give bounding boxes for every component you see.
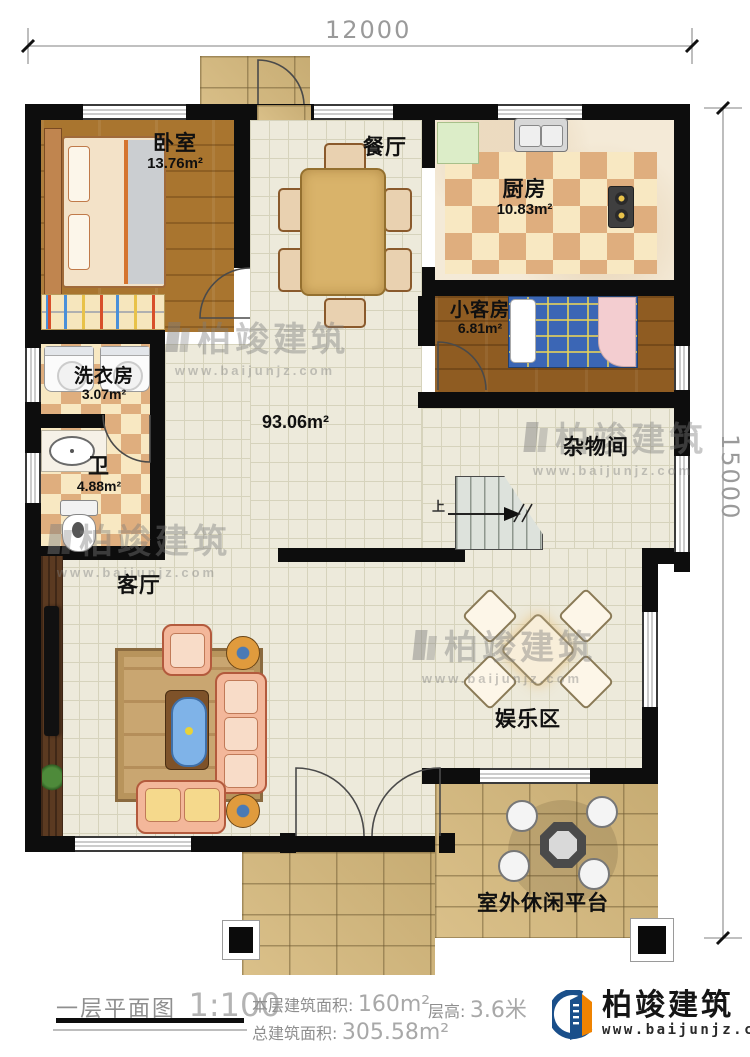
wardrobe xyxy=(41,294,165,330)
floor-area-value: 160m² xyxy=(358,992,430,1017)
patio-chair-2 xyxy=(586,796,618,828)
floor-plan-canvas: 上 xyxy=(0,0,750,1057)
kitchen-sink xyxy=(514,118,568,152)
platform-floor-lower xyxy=(242,852,435,975)
label-dining: 餐厅 xyxy=(343,136,427,160)
label-guest-room: 小客房6.81m² xyxy=(430,300,530,337)
side-table-top xyxy=(226,636,260,670)
window-left-bathroom xyxy=(25,453,41,503)
label-platform: 室外休闲平台 xyxy=(458,892,628,916)
sofa-two-seat xyxy=(136,780,226,834)
brand-logo: 柏竣建筑 www.baijunjz.com xyxy=(552,990,750,1042)
stairs-up-label: 上 xyxy=(432,496,445,515)
sofa-three-seat xyxy=(215,672,267,794)
label-hall-area: 93.06m² xyxy=(262,412,329,433)
wall-bedroom-right xyxy=(234,104,250,268)
window-top-dining xyxy=(314,104,393,120)
label-laundry: 洗衣房3.07m² xyxy=(48,366,160,403)
patio-chair-1 xyxy=(506,800,538,832)
bed-pillow-1 xyxy=(68,146,90,202)
door-post-left xyxy=(280,833,296,853)
dimension-top-value: 12000 xyxy=(325,16,411,44)
wall-bath-divider xyxy=(25,414,105,428)
window-right-guest xyxy=(674,346,690,390)
toilet xyxy=(58,500,98,552)
label-living: 客厅 xyxy=(100,574,178,598)
wall-bedroom-bottom xyxy=(25,330,165,344)
wall-hall-living-divider xyxy=(278,548,465,562)
window-right-storage xyxy=(674,456,690,552)
total-area-label: 总建筑面积: xyxy=(252,1024,337,1043)
label-storage: 杂物间 xyxy=(548,436,644,460)
dining-chair-right-2 xyxy=(384,248,412,292)
window-left-laundry xyxy=(25,348,41,402)
floor-area-row: 本层建筑面积: 160m² xyxy=(252,992,430,1017)
wall-guest-bottom xyxy=(418,392,674,408)
door-post-right xyxy=(439,833,455,853)
column-left xyxy=(222,920,260,960)
window-living-bottom xyxy=(75,836,191,852)
side-table-bottom xyxy=(226,794,260,828)
wall-laundry-right xyxy=(150,330,165,548)
label-entertainment: 娱乐区 xyxy=(478,708,578,732)
storey-height-label: 层高: xyxy=(428,1002,465,1021)
hall-left-floor xyxy=(165,344,250,548)
coffee-table xyxy=(165,690,209,770)
total-area-value: 305.58m² xyxy=(342,1020,449,1045)
patio-chair-3 xyxy=(498,850,530,882)
total-area-row: 总建筑面积: 305.58m² xyxy=(252,1020,449,1045)
dining-chair-right-1 xyxy=(384,188,412,232)
window-entertainment-bottom xyxy=(480,768,590,784)
bed-pillow-2 xyxy=(68,214,90,270)
dining-table xyxy=(300,168,386,296)
label-bedroom: 卧室13.76m² xyxy=(115,132,235,172)
bed-headboard xyxy=(44,128,62,296)
title-underline-thin xyxy=(53,1029,247,1031)
guest-bed-blanket xyxy=(598,297,636,367)
brand-url: www.baijunjz.com xyxy=(602,1022,750,1038)
dimension-right-value: 15000 xyxy=(716,434,744,514)
title-underline-thick xyxy=(56,1018,244,1023)
brand-name: 柏竣建筑 xyxy=(602,990,750,1022)
kitchen-cutting-counter xyxy=(437,122,479,164)
wall-entertainment-bottom-right xyxy=(590,768,658,784)
armchair xyxy=(162,624,212,676)
kitchen-stove xyxy=(608,186,634,228)
storey-height-value: 3.6米 xyxy=(470,998,527,1023)
tv xyxy=(44,606,59,736)
wall-entertainment-bottom-left xyxy=(422,768,480,784)
label-bathroom: 卫4.88m² xyxy=(60,455,138,494)
floor-area-label: 本层建筑面积: xyxy=(252,996,353,1015)
window-entertainment-right xyxy=(642,612,658,707)
dining-chair-bottom xyxy=(324,298,366,328)
patio-table xyxy=(540,822,586,868)
brand-logo-icon xyxy=(552,990,596,1042)
column-right xyxy=(630,918,674,962)
plant xyxy=(42,762,62,796)
patio-chair-4 xyxy=(578,858,610,890)
porch-door-opening xyxy=(257,105,311,120)
label-kitchen: 厨房10.83m² xyxy=(462,178,587,218)
wall-kitchen-bottom xyxy=(422,280,674,296)
window-top-bedroom xyxy=(83,104,186,120)
